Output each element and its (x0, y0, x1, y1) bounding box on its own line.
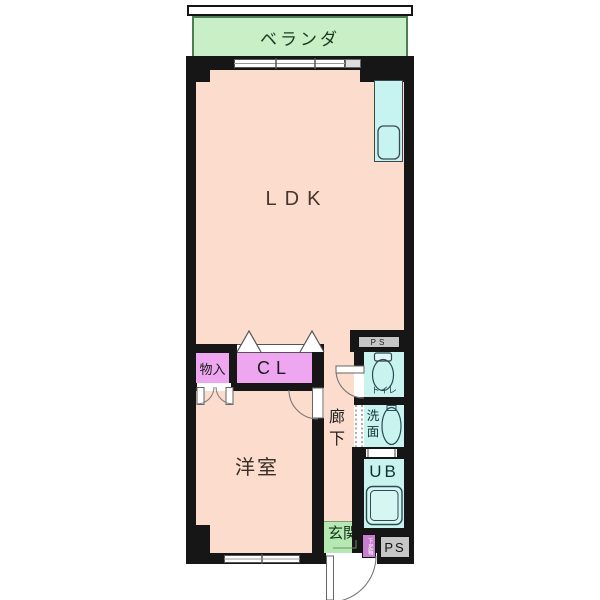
washroom-label-2: 面 (365, 423, 381, 437)
storage-door-opening (197, 383, 231, 391)
shoe-cabinet: 下足箱 (362, 534, 376, 558)
wall-corner-bottom-left (186, 525, 210, 564)
ldk-label: LDK (252, 186, 342, 212)
ldk-window (234, 59, 345, 68)
pipe-space-bottom-label: PS (384, 540, 405, 555)
veranda-label: ベランダ (260, 25, 340, 50)
ub-door-opening (366, 449, 397, 457)
storage-label: 物入 (199, 359, 225, 378)
storage-room: 物入 (196, 353, 229, 383)
closet-opening (236, 344, 324, 353)
wall-corner-top-left (186, 56, 210, 82)
pipe-space-top-label: PS (371, 338, 388, 347)
shoe-cabinet-label: 下足箱 (366, 538, 372, 555)
wall-corner-top-right (360, 56, 414, 82)
ldk-window-panel (345, 59, 361, 68)
toilet-door-slot (354, 371, 364, 397)
pipe-space-top: PS (358, 336, 400, 348)
closet-room: CL (237, 353, 312, 383)
floor-plan: ベランダ LDK 物入 CL 洋室 廊 下 PS トイレ (0, 0, 600, 600)
washroom-partition (354, 405, 364, 447)
balcony-railing (187, 5, 413, 16)
closet-label: CL (257, 358, 292, 379)
washroom-label-1: 洗 (365, 407, 381, 421)
toilet-label: トイレ (364, 384, 404, 396)
wall-toilet-west (354, 352, 364, 371)
western-room-window (224, 555, 300, 563)
western-room-label: 洋室 (212, 452, 302, 478)
western-door-opening (312, 388, 324, 418)
kitchen-counter (374, 80, 403, 162)
pipe-space-bottom: PS (380, 536, 410, 558)
corridor-label-1: 廊 (328, 406, 346, 424)
wall-western-corridor (312, 344, 324, 564)
veranda-area: ベランダ (192, 16, 408, 58)
wall-ub-west (352, 447, 364, 528)
corridor-label-2: 下 (328, 428, 346, 446)
unit-bath-label: UB (364, 463, 404, 481)
